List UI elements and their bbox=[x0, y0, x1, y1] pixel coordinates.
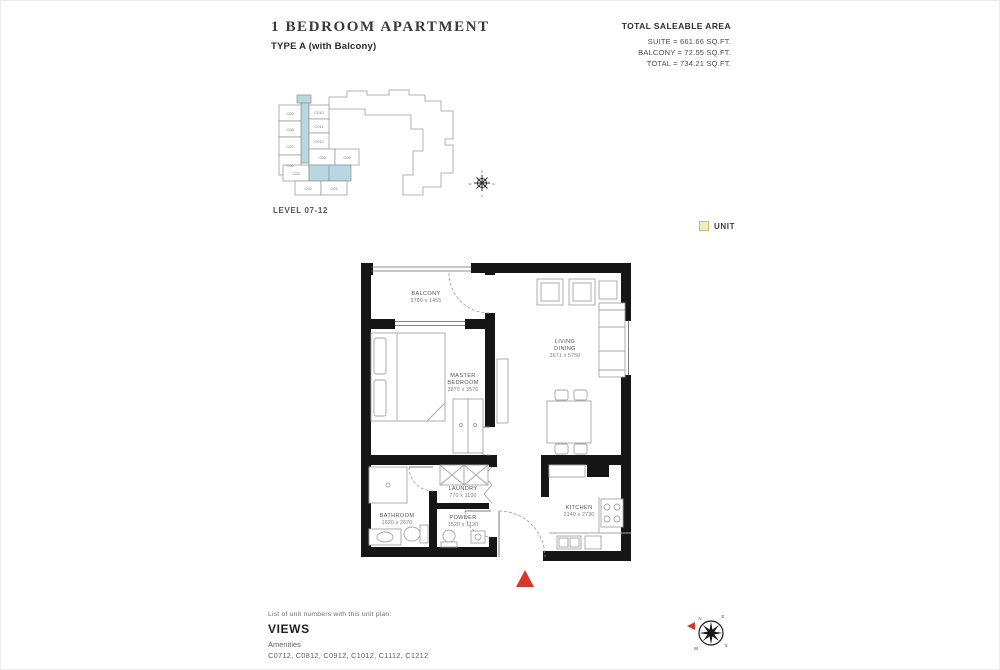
compass-w: W bbox=[694, 646, 699, 651]
powder-dims: 1520 x 1120 bbox=[448, 522, 478, 528]
keyplan-unit-label: C011 bbox=[314, 124, 324, 129]
unit-legend-label: UNIT bbox=[714, 222, 735, 231]
saleable-area-block: TOTAL SALEABLE AREA SUITE = 661.66 SQ.FT… bbox=[601, 21, 731, 69]
unit-legend: UNIT bbox=[699, 221, 735, 231]
mini-compass-icon: N E S W bbox=[467, 167, 497, 199]
keyplan-unit-label: C01 bbox=[330, 186, 338, 191]
shower bbox=[369, 467, 407, 503]
keyplan-unit-label: C08 bbox=[286, 127, 294, 132]
floorplan-drawing: BALCONY 3780 x 1455 MASTER BEDROOM 3870 … bbox=[353, 259, 643, 595]
page-subtitle: TYPE A (with Balcony) bbox=[271, 41, 490, 52]
powder-label: POWDER bbox=[449, 515, 476, 521]
master-bedroom-label: MASTER bbox=[450, 373, 475, 379]
mini-compass-e: E bbox=[492, 182, 494, 186]
title-block: 1 BEDROOM APARTMENT TYPE A (with Balcony… bbox=[271, 19, 490, 52]
powder-toilet-tank bbox=[441, 542, 457, 547]
views-label: VIEWS bbox=[268, 622, 428, 636]
entry-marker bbox=[516, 570, 534, 587]
keyplan-unit-label: C02 bbox=[304, 186, 312, 191]
compass-s: S bbox=[724, 643, 727, 648]
bathroom-vanity bbox=[369, 529, 401, 545]
svg-text:DINING: DINING bbox=[554, 346, 576, 352]
keyplan-drawing: C010 C011 C012 C09 C08 C07 C06 C05 C04 C… bbox=[269, 85, 469, 207]
laundry-dims: 770 x 1100 bbox=[449, 493, 476, 499]
kitchen-label: KITCHEN bbox=[565, 505, 592, 511]
dining-table bbox=[547, 401, 591, 443]
unit-list-heading: List of unit numbers with this unit plan… bbox=[268, 611, 428, 618]
mini-compass-w: W bbox=[469, 182, 472, 186]
stove bbox=[601, 499, 623, 527]
level-label: LEVEL 07-12 bbox=[273, 206, 328, 215]
dining-chair bbox=[574, 444, 587, 454]
floorplan-page: 1 BEDROOM APARTMENT TYPE A (with Balcony… bbox=[0, 0, 1000, 670]
keyplan-unit-label: C09 bbox=[286, 111, 294, 116]
mini-compass-n: N bbox=[481, 170, 483, 174]
compass-rose-icon: N E S W bbox=[685, 603, 737, 659]
amenities-label: Amenities bbox=[268, 640, 428, 649]
master-bedroom-dims: 3870 x 3570 bbox=[448, 387, 479, 393]
kitchen-cabinet bbox=[549, 465, 585, 477]
side-table bbox=[599, 281, 617, 299]
tv-console bbox=[497, 359, 508, 423]
living-dining-dims: 3671 x 5750 bbox=[550, 353, 581, 359]
bathroom-dims: 1620 x 2670 bbox=[382, 520, 413, 526]
toilet-tank bbox=[420, 525, 428, 543]
kitchen-dims: 2140 x 2730 bbox=[564, 512, 595, 518]
balcony-dims: 3780 x 1455 bbox=[411, 298, 442, 304]
bathroom-label: BATHROOM bbox=[380, 513, 415, 519]
keyplan-unit-label: C04 bbox=[343, 155, 351, 160]
keyplan-unit-cluster: C010 C011 C012 C09 C08 C07 C06 C05 C04 C… bbox=[279, 95, 359, 195]
sofa bbox=[599, 303, 625, 377]
unit-legend-swatch bbox=[699, 221, 709, 231]
unit-numbers-list: C0712, C0812, C0912, C1012, C1112, C1212 bbox=[268, 651, 428, 660]
dining-chair bbox=[574, 390, 587, 400]
keyplan-unit-label: C012 bbox=[314, 139, 324, 144]
mini-compass-s: S bbox=[481, 194, 483, 198]
keyplan-unit-label: C010 bbox=[314, 110, 324, 115]
laundry-label: LAUNDRY bbox=[448, 486, 477, 492]
living-dining-label: LIVING bbox=[555, 339, 575, 345]
compass-e: E bbox=[721, 614, 724, 619]
dining-chair bbox=[555, 444, 568, 454]
area-line-suite: SUITE = 661.66 SQ.FT. bbox=[601, 36, 731, 47]
area-line-balcony: BALCONY = 72.55 SQ.FT. bbox=[601, 47, 731, 58]
area-heading: TOTAL SALEABLE AREA bbox=[601, 21, 731, 31]
toilet-bowl bbox=[404, 527, 420, 541]
dishwasher bbox=[585, 536, 601, 549]
bathroom-door-arc bbox=[409, 467, 433, 491]
svg-text:BEDROOM: BEDROOM bbox=[447, 380, 478, 386]
keyplan-corridor bbox=[297, 95, 311, 103]
compass-north-arrow bbox=[687, 622, 695, 630]
compass-n: N bbox=[698, 616, 701, 621]
powder-sink bbox=[471, 531, 485, 543]
balcony-label: BALCONY bbox=[411, 291, 440, 297]
page-title: 1 BEDROOM APARTMENT bbox=[271, 19, 490, 36]
area-line-total: TOTAL = 734.21 SQ.FT. bbox=[601, 58, 731, 69]
keyplan-unit-label: C05 bbox=[318, 155, 326, 160]
dining-chair bbox=[555, 390, 568, 400]
entry-door-arc bbox=[499, 511, 545, 557]
keyplan-unit-label: C07 bbox=[286, 144, 294, 149]
footer-block: List of unit numbers with this unit plan… bbox=[268, 611, 428, 660]
powder-toilet-bowl bbox=[443, 530, 455, 542]
keyplan-unit-label: C06 bbox=[286, 163, 294, 168]
keyplan-unit-label: C03 bbox=[292, 171, 300, 176]
balcony-door-arc bbox=[449, 273, 489, 313]
